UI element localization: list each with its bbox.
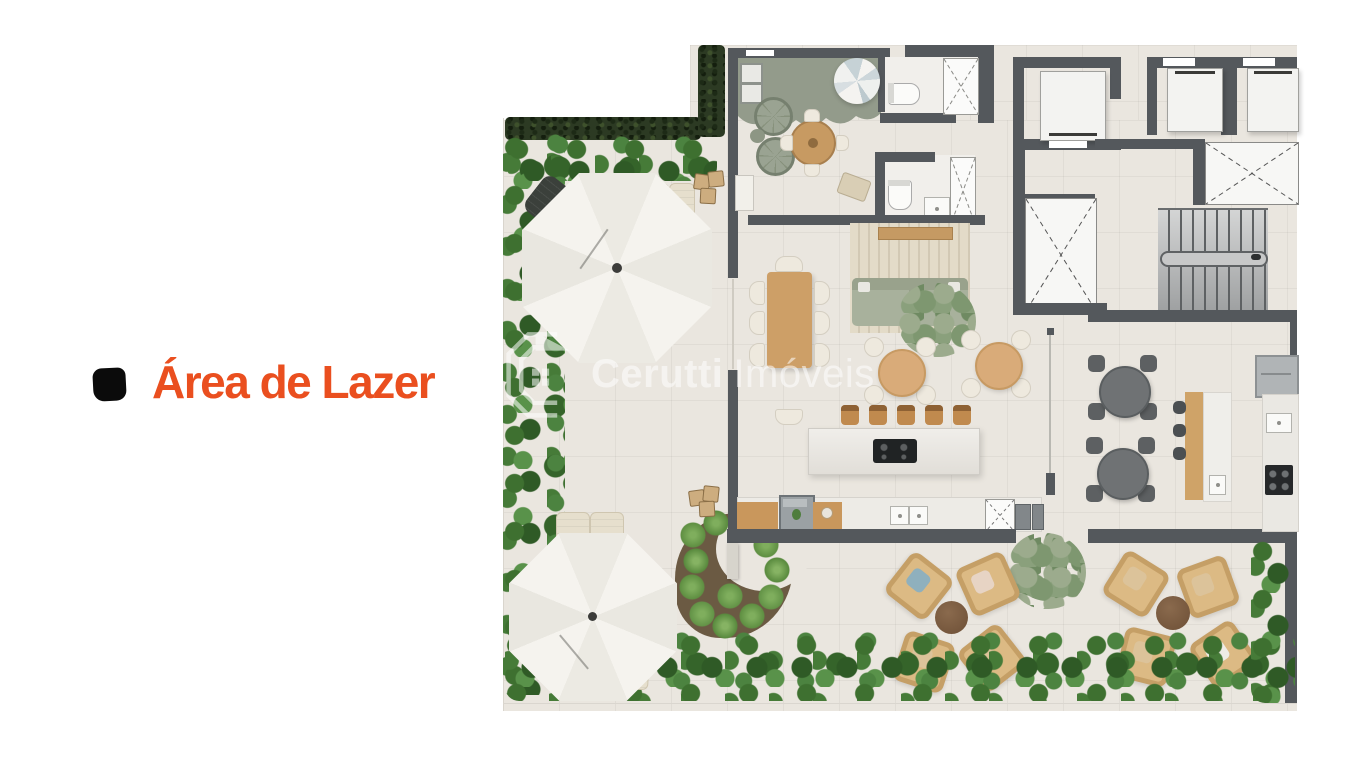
dining-chair — [749, 281, 765, 305]
wall-counter-back-left — [727, 529, 1016, 543]
wall-lobby-left — [1013, 57, 1024, 150]
plan-border-bottom — [503, 703, 1297, 704]
counter-sink — [890, 506, 909, 525]
round-pouf — [935, 601, 968, 634]
door-marker — [1243, 58, 1275, 66]
gourmet-chair — [1138, 437, 1155, 454]
elevator-shaft — [1025, 198, 1097, 312]
sideboard — [878, 227, 953, 240]
wood-cabinet — [737, 502, 778, 530]
gourmet-table — [1099, 366, 1151, 418]
dining-chair — [814, 281, 830, 305]
pillar — [727, 543, 738, 579]
wall-lobby-right — [1110, 57, 1121, 99]
wall-shaftA-top — [1095, 139, 1205, 149]
bistro-chair — [961, 378, 981, 398]
shower-box — [943, 58, 979, 115]
wall-gourmet-top — [1088, 310, 1297, 322]
kids-table-center — [808, 138, 818, 148]
side-table-box — [700, 188, 717, 205]
elevator-car — [1040, 71, 1106, 141]
plant — [1015, 537, 1081, 601]
umbrella-pole — [612, 263, 622, 273]
umbrella-pole — [588, 612, 597, 621]
fridge — [1255, 355, 1299, 398]
picture-frame — [740, 83, 763, 104]
bistro-chair — [916, 337, 936, 357]
appliance-hatched — [985, 499, 1015, 532]
island-stool — [1173, 424, 1186, 437]
counter-sink — [909, 506, 928, 525]
wall-lobby-top — [1013, 57, 1121, 68]
page-title: Área de Lazer — [152, 355, 434, 409]
kids-chair — [804, 109, 820, 122]
gourmet-chair — [1140, 355, 1157, 372]
gourmet-chair — [1086, 437, 1103, 454]
bullet-icon — [92, 367, 127, 402]
toilet-tank — [888, 83, 894, 103]
dining-chair — [775, 256, 803, 272]
picture-frame — [740, 63, 763, 84]
play-pouf — [750, 129, 765, 143]
page-canvas: Área de Lazer — [0, 0, 1353, 758]
side-table-box — [707, 170, 725, 188]
appliance — [1032, 504, 1044, 530]
wall-shaft-divider — [1147, 57, 1157, 135]
stove — [1265, 465, 1293, 495]
island-stool — [1173, 447, 1186, 460]
side-table-box — [699, 501, 716, 518]
kids-chair — [804, 164, 820, 177]
hedge-corner — [698, 45, 725, 137]
kids-chair — [780, 135, 793, 151]
door-marker — [746, 50, 774, 56]
gourmet-island-wood — [1185, 392, 1203, 500]
wall-shaft-divider — [1221, 57, 1237, 135]
round-pouf — [1156, 596, 1190, 630]
appliance — [1015, 504, 1031, 530]
elevator-car — [1167, 68, 1223, 132]
bar-stool — [897, 405, 915, 425]
counter-sink — [1266, 413, 1292, 433]
wall-shaftB-left — [1013, 150, 1025, 315]
stair-rail-dot — [1251, 254, 1261, 260]
bistro-table — [878, 349, 926, 397]
wall-shaftA-left — [1193, 139, 1205, 205]
wall-cabinet — [735, 175, 754, 211]
door-marker — [1163, 58, 1195, 66]
bar-stool — [953, 405, 971, 425]
kids-chair — [836, 135, 849, 151]
herb-pot — [792, 509, 801, 520]
watermark-text: CeruttiImóveis — [591, 352, 875, 397]
gourmet-chair — [1088, 355, 1105, 372]
bistro-table — [975, 342, 1023, 390]
planting-right — [1251, 537, 1291, 703]
cooktop — [873, 439, 917, 463]
elevator-car — [1247, 68, 1299, 132]
elevator-shaft — [1205, 142, 1299, 205]
play-teepee — [834, 58, 880, 104]
bistro-chair — [961, 330, 981, 350]
island-sink — [1209, 475, 1226, 495]
door-marker — [1049, 141, 1087, 148]
bar-stool — [925, 405, 943, 425]
cerutti-logo-icon — [505, 328, 577, 420]
glass-partition-stub — [1046, 473, 1055, 495]
wall-wc1-right — [978, 45, 994, 123]
wall-west-upper — [728, 48, 738, 278]
island-stool — [1173, 401, 1186, 414]
glass-partition — [1049, 330, 1051, 480]
glass-partition-stub — [1047, 328, 1054, 335]
watermark: CeruttiImóveis — [505, 328, 875, 420]
toilet-tank — [888, 180, 910, 186]
prep-bowl — [821, 507, 833, 519]
gourmet-table — [1097, 448, 1149, 500]
